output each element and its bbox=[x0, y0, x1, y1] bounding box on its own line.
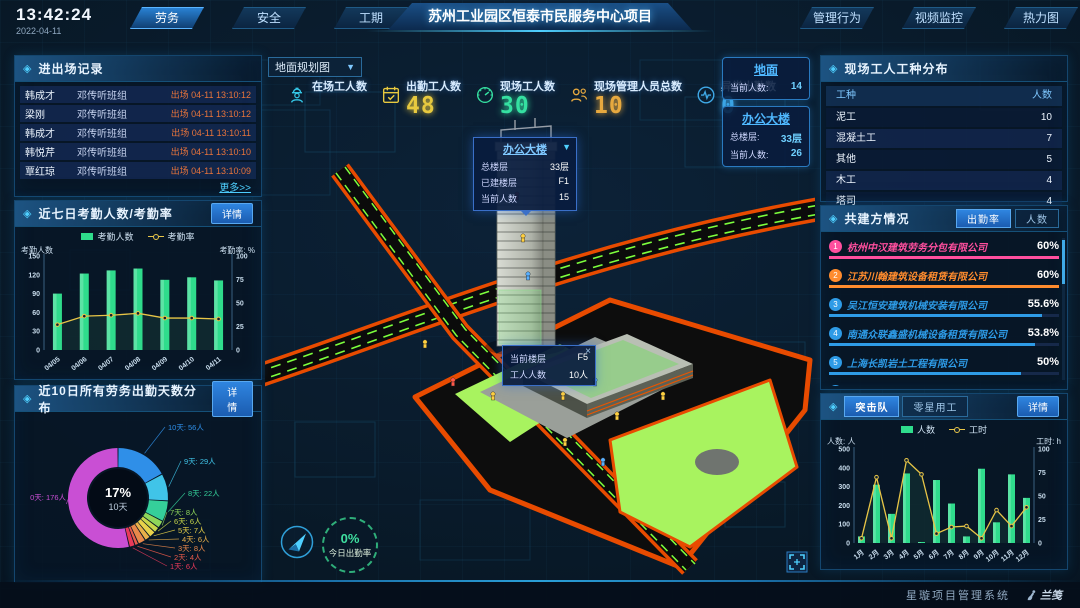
gauge-value: 0% bbox=[341, 531, 360, 546]
svg-text:5月: 5月 bbox=[912, 548, 926, 561]
partner-row[interactable]: 1杭州中汉建筑劳务分包有限公司60% bbox=[829, 238, 1059, 259]
site-stats-row: 在场工人数出勤工人数48现场工人数30现场管理人员总数10异常出勤数0 bbox=[286, 78, 738, 118]
svg-text:8天: 22人: 8天: 22人 bbox=[188, 489, 220, 498]
partners-tab-0[interactable]: 出勤率 bbox=[956, 209, 1011, 228]
svg-text:400: 400 bbox=[838, 465, 850, 472]
partner-rate: 35.4% bbox=[1028, 385, 1059, 386]
calendar-icon bbox=[380, 84, 402, 111]
partner-name: 江苏川翰建筑设备租赁有限公司 bbox=[847, 268, 1033, 283]
rank-badge: 6 bbox=[829, 385, 842, 387]
attendance-legend: 考勤人数考勤率 bbox=[15, 229, 261, 244]
entry-exit-row[interactable]: 覃红琼邓传听班组出场 04-11 13:10:09 bbox=[20, 162, 256, 179]
panel-attendance-title: 近七日考勤人数/考勤率 bbox=[38, 205, 172, 222]
partner-row[interactable]: 2江苏川翰建筑设备租赁有限公司60% bbox=[829, 267, 1059, 288]
svg-text:2月: 2月 bbox=[867, 548, 881, 561]
office-card[interactable]: 办公大楼 总楼层:33层当前人数:26 bbox=[722, 106, 810, 167]
nav-tab-left-1[interactable]: 安全 bbox=[232, 7, 306, 29]
partner-rate: 53.8% bbox=[1028, 327, 1059, 339]
partner-name: 南通众联鑫盛机械设备租赁有限公司 bbox=[847, 326, 1024, 341]
diamond-icon: ◈ bbox=[829, 212, 838, 225]
worker-types-header: 工种 人数 bbox=[826, 86, 1062, 106]
stat-3: 现场管理人员总数10 bbox=[568, 78, 682, 118]
building-tooltip[interactable]: 办公大楼 ▼ 总楼层33层已建楼层F1当前人数15 bbox=[473, 137, 577, 211]
svg-text:0: 0 bbox=[1038, 541, 1042, 548]
svg-text:60: 60 bbox=[32, 310, 40, 317]
attendance-left-axis-label: 考勤人数 bbox=[21, 245, 53, 256]
svg-text:10月: 10月 bbox=[984, 548, 1001, 563]
svg-text:5天: 7人: 5天: 7人 bbox=[178, 526, 206, 535]
rank-badge: 5 bbox=[829, 356, 842, 369]
svg-text:6月: 6月 bbox=[927, 548, 941, 561]
stat-label: 出勤工人数 bbox=[406, 78, 461, 94]
stat-label: 在场工人数 bbox=[312, 78, 367, 94]
clock-date: 2022-04-11 bbox=[16, 26, 92, 36]
map-layer-select[interactable]: 地面规划图 ▼ bbox=[268, 57, 362, 77]
svg-text:25: 25 bbox=[1038, 517, 1046, 524]
panel-distribution-title: 近10日所有劳务出勤天数分布 bbox=[38, 382, 205, 416]
attendance-detail-button[interactable]: 详情 bbox=[211, 203, 253, 224]
title-underline bbox=[366, 30, 714, 32]
svg-text:4天: 6人: 4天: 6人 bbox=[182, 535, 210, 544]
stat-value: 48 bbox=[406, 94, 461, 118]
ground-card-title[interactable]: 地面 bbox=[730, 61, 802, 78]
clock: 13:42:24 2022-04-11 bbox=[16, 5, 92, 36]
scrollbar[interactable] bbox=[1062, 238, 1065, 380]
assault-right-axis-label: 工时: h bbox=[1036, 436, 1061, 447]
panel-entry-exit-title: 进出场记录 bbox=[38, 60, 103, 77]
svg-text:0: 0 bbox=[36, 348, 40, 355]
svg-text:50: 50 bbox=[1038, 494, 1046, 501]
entry-exit-row[interactable]: 梁刚邓传听班组出场 04-11 13:10:12 bbox=[20, 105, 256, 122]
stat-value: 30 bbox=[500, 94, 555, 118]
people-icon bbox=[568, 84, 590, 111]
rank-badge: 3 bbox=[829, 298, 842, 311]
worker-type-row[interactable]: 泥工10 bbox=[826, 108, 1062, 127]
nav-tab-right-2[interactable]: 热力图 bbox=[1004, 7, 1078, 29]
nav-right: 管理行为视频监控热力图 bbox=[800, 7, 1078, 29]
legend-item: 考勤人数 bbox=[81, 230, 133, 243]
gauge-label: 今日出勤率 bbox=[329, 547, 372, 559]
diamond-icon: ◈ bbox=[23, 207, 32, 220]
stat-text-2: 现场工人数30 bbox=[500, 78, 555, 118]
partner-row[interactable]: 5上海长凯岩土工程有限公司50% bbox=[829, 354, 1059, 375]
diamond-icon: ◈ bbox=[829, 400, 838, 413]
brand-logo: 兰笺 bbox=[1024, 587, 1062, 603]
building-tooltip-title[interactable]: 办公大楼 bbox=[481, 141, 569, 157]
svg-text:100: 100 bbox=[838, 522, 850, 529]
svg-text:17%: 17% bbox=[105, 485, 131, 500]
distribution-detail-button[interactable]: 详情 bbox=[212, 381, 254, 417]
svg-text:04/10: 04/10 bbox=[178, 356, 196, 372]
building-tooltip-rows: 总楼层33层已建楼层F1当前人数15 bbox=[481, 160, 569, 205]
floor-tooltip-rows: 当前楼层F5工人人数10人 bbox=[510, 352, 588, 381]
svg-text:4月: 4月 bbox=[897, 548, 911, 561]
assault-tab-0[interactable]: 突击队 bbox=[844, 396, 899, 417]
rank-badge: 1 bbox=[829, 240, 842, 253]
svg-text:9天: 29人: 9天: 29人 bbox=[184, 457, 216, 466]
pulse-icon bbox=[695, 84, 717, 111]
partner-name: 上海长凯岩土工程有限公司 bbox=[847, 355, 1033, 370]
svg-text:2天: 4人: 2天: 4人 bbox=[174, 553, 202, 562]
svg-text:0天: 176人: 0天: 176人 bbox=[30, 493, 66, 502]
partners-tab-1[interactable]: 人数 bbox=[1015, 209, 1059, 228]
stat-label: 现场管理人员总数 bbox=[594, 78, 682, 94]
svg-text:04/07: 04/07 bbox=[97, 356, 115, 372]
partner-row[interactable]: 4南通众联鑫盛机械设备租赁有限公司53.8% bbox=[829, 325, 1059, 346]
partner-name: 江苏法治建筑安装工程有限公司 bbox=[847, 384, 1024, 387]
svg-text:6天: 6人: 6天: 6人 bbox=[174, 517, 202, 526]
assault-chart: 010020030040050002550751001月2月3月4月5月6月7月… bbox=[824, 439, 1064, 567]
page-title: 苏州工业园区恒泰市民服务中心项目 bbox=[388, 3, 692, 30]
panel-entry-exit: ◈ 进出场记录 韩成才邓传听班组出场 04-11 13:10:12梁刚邓传听班组… bbox=[14, 55, 262, 197]
kv-row: 当前人数15 bbox=[481, 192, 569, 205]
floor-tooltip[interactable]: × 当前楼层F5工人人数10人 bbox=[502, 345, 596, 386]
stat-value: 10 bbox=[594, 94, 682, 118]
legend-item: 人数 bbox=[901, 423, 935, 436]
rank-badge: 2 bbox=[829, 269, 842, 282]
stat-1: 出勤工人数48 bbox=[380, 78, 461, 118]
kv-row: 当前楼层F5 bbox=[510, 352, 588, 365]
diamond-icon: ◈ bbox=[829, 62, 838, 75]
kv-row: 当前人数:26 bbox=[730, 148, 802, 161]
svg-text:25: 25 bbox=[236, 324, 244, 331]
brand-name: 兰笺 bbox=[1040, 587, 1062, 603]
fullscreen-icon[interactable] bbox=[786, 551, 808, 578]
svg-text:12月: 12月 bbox=[1014, 548, 1031, 563]
panel-assault: ◈ 突击队零星用工 详情 人数工时 人数: 人 工时: h 0100200300… bbox=[820, 393, 1068, 570]
stat-2: 现场工人数30 bbox=[474, 78, 555, 118]
stat-text-0: 在场工人数 bbox=[312, 78, 367, 94]
assault-legend: 人数工时 bbox=[821, 422, 1067, 437]
partner-name: 杭州中汉建筑劳务分包有限公司 bbox=[847, 239, 1033, 254]
stat-label: 现场工人数 bbox=[500, 78, 555, 94]
entry-exit-row[interactable]: 韩成才邓传听班组出场 04-11 13:10:11 bbox=[20, 124, 256, 141]
partner-rate: 60% bbox=[1037, 240, 1059, 252]
kv-row: 工人人数10人 bbox=[510, 368, 588, 381]
svg-text:8月: 8月 bbox=[957, 548, 971, 561]
kv-row: 总楼层33层 bbox=[481, 160, 569, 173]
compass-icon[interactable] bbox=[279, 524, 315, 565]
partner-name: 吴江恒安建筑机械安装有限公司 bbox=[847, 297, 1024, 312]
svg-text:7月: 7月 bbox=[942, 548, 956, 561]
panel-distribution: ◈ 近10日所有劳务出勤天数分布 详情 10天: 56人9天: 29人8天: 2… bbox=[14, 385, 262, 583]
partner-row[interactable]: 6江苏法治建筑安装工程有限公司35.4% bbox=[829, 383, 1059, 386]
svg-text:30: 30 bbox=[32, 329, 40, 336]
stat-text-3: 现场管理人员总数10 bbox=[594, 78, 682, 118]
worker-type-row[interactable]: 其他5 bbox=[826, 150, 1062, 169]
footer: 星璇项目管理系统 兰笺 bbox=[0, 582, 1080, 608]
kv-row: 当前人数:14 bbox=[730, 81, 802, 94]
more-link[interactable]: 更多>> bbox=[219, 179, 251, 194]
map-layer-label: 地面规划图 bbox=[275, 59, 330, 75]
distribution-donut-chart: 10天: 56人9天: 29人8天: 22人7天: 8人6天: 6人5天: 7人… bbox=[18, 414, 258, 580]
nav-tab-right-1[interactable]: 视频监控 bbox=[902, 7, 976, 29]
assault-left-axis-label: 人数: 人 bbox=[827, 436, 855, 447]
svg-text:7天: 8人: 7天: 8人 bbox=[170, 508, 198, 517]
svg-text:1月: 1月 bbox=[852, 548, 866, 561]
chevron-down-icon[interactable]: ▼ bbox=[562, 142, 571, 152]
stat-0: 在场工人数 bbox=[286, 78, 367, 118]
plaza bbox=[695, 449, 739, 475]
panel-attendance: ◈ 近七日考勤人数/考勤率 详情 考勤人数考勤率 考勤人数 考勤率: % 030… bbox=[14, 200, 262, 380]
today-attendance-gauge: 0% 今日出勤率 bbox=[322, 517, 378, 573]
worker-icon bbox=[286, 84, 308, 111]
office-card-title[interactable]: 办公大楼 bbox=[730, 110, 802, 127]
worker-type-row[interactable]: 混凝土工7 bbox=[826, 129, 1062, 148]
svg-text:75: 75 bbox=[236, 277, 244, 284]
svg-text:1天: 6人: 1天: 6人 bbox=[170, 562, 198, 571]
legend-item: 工时 bbox=[949, 423, 987, 436]
assault-tab-1[interactable]: 零星用工 bbox=[902, 396, 968, 417]
svg-text:300: 300 bbox=[838, 484, 850, 491]
kv-row: 已建楼层F1 bbox=[481, 176, 569, 189]
worker-types-list: 泥工10混凝土工7其他5木工4塔司4 bbox=[821, 108, 1067, 211]
svg-text:0: 0 bbox=[236, 348, 240, 355]
assault-detail-button[interactable]: 详情 bbox=[1017, 396, 1059, 417]
gauge-icon bbox=[474, 84, 496, 111]
svg-text:3月: 3月 bbox=[882, 548, 896, 561]
svg-text:500: 500 bbox=[838, 447, 850, 454]
svg-text:10天: 56人: 10天: 56人 bbox=[168, 423, 204, 432]
entry-exit-row[interactable]: 韩成才邓传听班组出场 04-11 13:10:12 bbox=[20, 86, 256, 103]
dashboard-root: 13:42:24 2022-04-11 劳务安全工期 苏州工业园区恒泰市民服务中… bbox=[0, 0, 1080, 608]
svg-text:04/05: 04/05 bbox=[44, 356, 62, 372]
nav-left: 劳务安全工期 bbox=[130, 7, 408, 29]
partner-row[interactable]: 3吴江恒安建筑机械安装有限公司55.6% bbox=[829, 296, 1059, 317]
partners-tabs: 出勤率人数 bbox=[956, 209, 1059, 228]
worker-type-row[interactable]: 木工4 bbox=[826, 171, 1062, 190]
close-icon[interactable]: × bbox=[585, 346, 591, 357]
svg-text:04/09: 04/09 bbox=[151, 356, 169, 372]
partner-rate: 50% bbox=[1037, 356, 1059, 368]
legend-item: 考勤率 bbox=[148, 230, 195, 243]
svg-text:10天: 10天 bbox=[108, 502, 127, 512]
brand-icon bbox=[1024, 589, 1037, 602]
svg-text:11月: 11月 bbox=[999, 548, 1015, 563]
svg-text:90: 90 bbox=[32, 291, 40, 298]
diamond-icon: ◈ bbox=[23, 392, 32, 405]
panel-partners: ◈ 共建方情况 出勤率人数 1杭州中汉建筑劳务分包有限公司60%2江苏川翰建筑设… bbox=[820, 205, 1068, 390]
clock-time: 13:42:24 bbox=[16, 5, 92, 25]
attendance-chart: 0306090120150025507510004/0504/0604/0704… bbox=[18, 246, 258, 376]
assault-tabs: 突击队零星用工 bbox=[844, 396, 968, 417]
svg-text:200: 200 bbox=[838, 503, 850, 510]
stat-text-1: 出勤工人数48 bbox=[406, 78, 461, 118]
panel-worker-types-title: 现场工人工种分布 bbox=[844, 60, 948, 77]
diamond-icon: ◈ bbox=[23, 62, 32, 75]
attendance-right-axis-label: 考勤率: % bbox=[219, 245, 255, 256]
svg-text:120: 120 bbox=[28, 272, 40, 279]
svg-text:9月: 9月 bbox=[972, 548, 986, 561]
partners-list: 1杭州中汉建筑劳务分包有限公司60%2江苏川翰建筑设备租赁有限公司60%3吴江恒… bbox=[821, 232, 1067, 386]
entry-exit-row[interactable]: 韩悦芹邓传听班组出场 04-11 13:10:10 bbox=[20, 143, 256, 160]
svg-text:50: 50 bbox=[236, 301, 244, 308]
panel-worker-types: ◈ 现场工人工种分布 工种 人数 泥工10混凝土工7其他5木工4塔司4 bbox=[820, 55, 1068, 202]
partner-rate: 60% bbox=[1037, 269, 1059, 281]
svg-text:04/08: 04/08 bbox=[124, 356, 142, 372]
ground-card[interactable]: 地面 当前人数:14 bbox=[722, 57, 810, 100]
svg-text:04/11: 04/11 bbox=[205, 356, 223, 372]
kv-row: 总楼层:33层 bbox=[730, 130, 802, 145]
entry-exit-list: 韩成才邓传听班组出场 04-11 13:10:12梁刚邓传听班组出场 04-11… bbox=[15, 82, 261, 179]
nav-tab-right-0[interactable]: 管理行为 bbox=[800, 7, 874, 29]
panel-partners-title: 共建方情况 bbox=[844, 210, 909, 227]
system-name: 星璇项目管理系统 bbox=[906, 587, 1010, 603]
partner-rate: 55.6% bbox=[1028, 298, 1059, 310]
chevron-down-icon: ▼ bbox=[346, 62, 355, 72]
svg-text:0: 0 bbox=[846, 541, 850, 548]
svg-text:75: 75 bbox=[1038, 470, 1046, 477]
svg-text:04/06: 04/06 bbox=[70, 356, 88, 372]
rank-badge: 4 bbox=[829, 327, 842, 340]
svg-text:3天: 8人: 3天: 8人 bbox=[178, 544, 206, 553]
nav-tab-left-0[interactable]: 劳务 bbox=[130, 7, 204, 29]
svg-text:100: 100 bbox=[1038, 447, 1050, 454]
